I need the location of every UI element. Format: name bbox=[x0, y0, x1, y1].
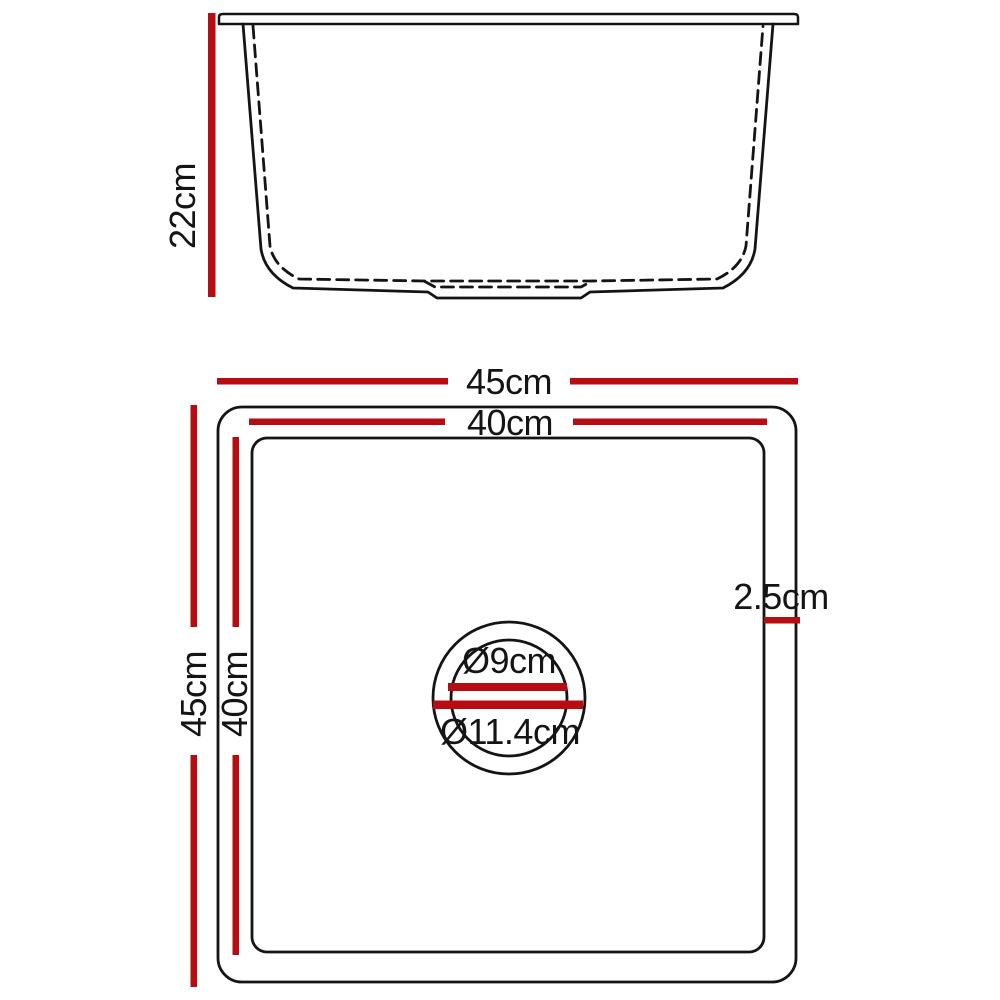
dimension-line-edge-thickness bbox=[764, 617, 800, 624]
top-view-inner-bowl-edge bbox=[252, 438, 764, 952]
side-view-outline bbox=[219, 14, 798, 298]
diagram-linework bbox=[0, 0, 1000, 1000]
sink-dimension-diagram: 22cm 45cm 40cm 45cm 40cm 2.5cm Ø9cm Ø11.… bbox=[0, 0, 1000, 1000]
dimension-line-outer-width-right bbox=[570, 378, 798, 385]
dimension-line-drain-outer bbox=[433, 701, 583, 710]
top-view-outer-edge bbox=[218, 407, 796, 982]
side-view-rim bbox=[219, 14, 798, 24]
dimension-label-edge-thickness: 2.5cm bbox=[733, 579, 829, 615]
dimension-label-inner-width: 40cm bbox=[467, 405, 553, 441]
dimension-label-outer-depth: 45cm bbox=[176, 651, 212, 737]
dimension-line-outer-width-left bbox=[217, 378, 448, 385]
dimension-label-outer-width: 45cm bbox=[466, 364, 552, 400]
dimension-label-drain-outer-diameter: Ø11.4cm bbox=[440, 714, 580, 750]
dimension-line-inner-depth-bottom bbox=[233, 755, 240, 955]
dimension-lines bbox=[191, 13, 801, 987]
dimension-label-side-height: 22cm bbox=[165, 163, 201, 249]
dimension-line-inner-width-left bbox=[249, 419, 445, 426]
dimension-label-inner-depth: 40cm bbox=[217, 651, 253, 737]
dimension-line-inner-width-right bbox=[573, 419, 767, 426]
dimension-label-drain-inner-diameter: Ø9cm bbox=[462, 643, 556, 679]
dimension-line-outer-depth-bottom bbox=[191, 755, 198, 987]
dimension-line-outer-depth-top bbox=[191, 405, 198, 627]
top-view-outline bbox=[218, 407, 796, 982]
dimension-line-drain-inner bbox=[448, 683, 567, 691]
side-view-bowl-outline bbox=[243, 24, 773, 298]
side-view-inner-surface-dashed bbox=[253, 26, 763, 281]
dimension-line-inner-depth-top bbox=[233, 437, 240, 627]
dimension-line-side-height bbox=[208, 13, 216, 297]
